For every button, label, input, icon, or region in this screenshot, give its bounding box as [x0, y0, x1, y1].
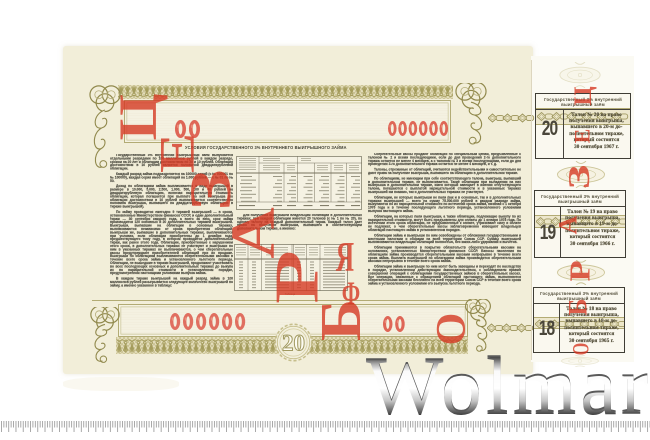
svg-text:Б: Б	[564, 298, 593, 315]
svg-text:Е: Е	[149, 133, 204, 173]
svg-text:З: З	[179, 169, 243, 210]
svg-text:Я: Я	[336, 235, 354, 281]
svg-text:Е: Е	[569, 129, 594, 144]
svg-text:Ф: Ф	[342, 275, 360, 312]
svg-text:Ц: Ц	[570, 86, 597, 106]
svg-text:З: З	[562, 165, 597, 190]
svg-text:Р: Р	[263, 250, 331, 304]
svg-text:Р: Р	[563, 260, 596, 281]
svg-text:О: О	[569, 343, 594, 356]
svg-text:А: А	[554, 215, 583, 234]
svg-text:О: О	[429, 313, 475, 346]
